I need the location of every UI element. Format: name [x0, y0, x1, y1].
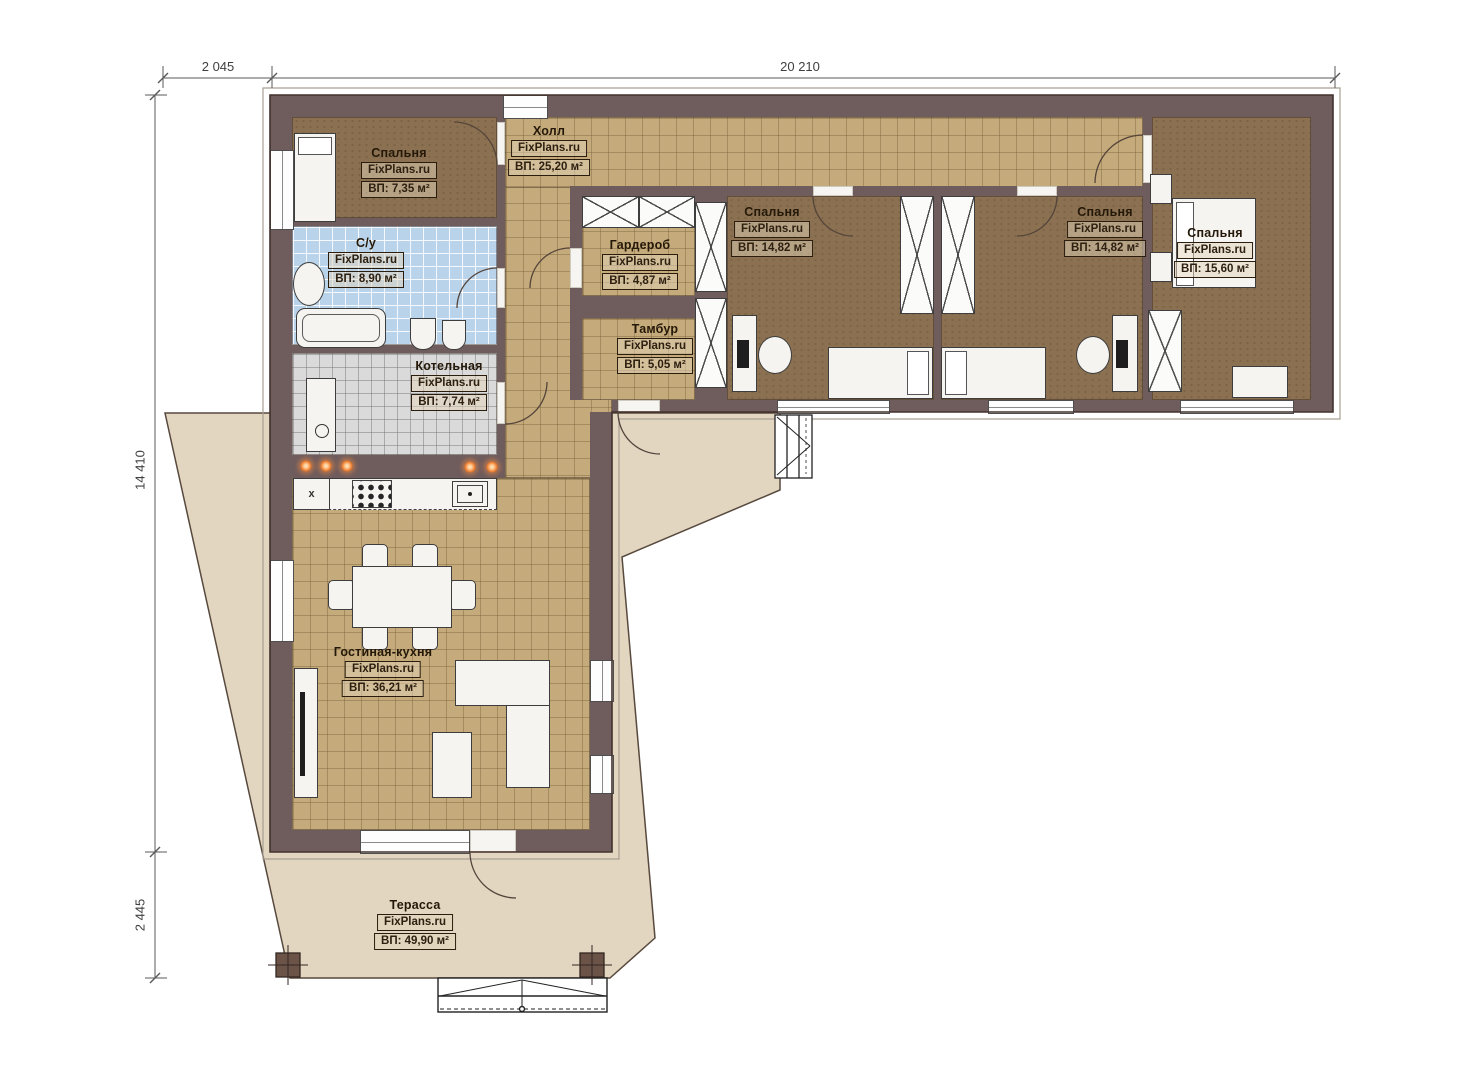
room-source: FixPlans.ru — [1177, 242, 1253, 259]
bed-bedroom-1 — [294, 133, 336, 222]
tv-stand — [294, 668, 318, 798]
utility-point-icon — [320, 460, 332, 472]
kitchen-sink — [452, 481, 488, 507]
room-source: FixPlans.ru — [377, 914, 453, 931]
closet-bedroom-4 — [1148, 310, 1182, 392]
room-label-terrace: Терасса FixPlans.ru ВП: 49,90 м² — [374, 898, 456, 950]
utility-point-icon — [300, 460, 312, 472]
closet-bedroom-2 — [900, 196, 934, 314]
room-title: Спальня — [371, 146, 426, 160]
room-source: FixPlans.ru — [511, 140, 587, 157]
bidet — [442, 320, 466, 350]
tv — [300, 692, 305, 776]
coffee-table — [432, 732, 472, 798]
stove — [352, 480, 392, 508]
room-area: ВП: 49,90 м² — [374, 933, 456, 950]
dining-chair — [412, 544, 438, 568]
utility-point-icon — [464, 461, 476, 473]
door-wardrobe — [570, 248, 582, 288]
window-bedroom-3 — [988, 400, 1074, 414]
wall-hall-bedrooms — [570, 186, 1143, 196]
window-living-right-1 — [590, 660, 614, 702]
room-label-hall: Холл FixPlans.ru ВП: 25,20 м² — [508, 124, 590, 176]
nightstand-1 — [1150, 174, 1172, 204]
room-area: ВП: 4,87 м² — [602, 273, 678, 290]
sofa-vertical — [506, 705, 550, 788]
room-label-bedroom-1: Спальня FixPlans.ru ВП: 7,35 м² — [361, 146, 437, 198]
door-terrace — [470, 830, 516, 852]
room-title: Холл — [533, 124, 565, 138]
chair-bedroom-2 — [758, 336, 792, 374]
dresser-bedroom-4 — [1232, 366, 1288, 398]
room-title: Терасса — [390, 898, 441, 912]
bathroom-sink — [293, 262, 325, 306]
door-bedroom-1 — [497, 122, 505, 165]
closet-strip-lower — [695, 298, 727, 388]
room-title: Спальня — [1187, 226, 1242, 240]
garden-steps — [438, 978, 607, 1012]
closet-strip-upper — [695, 202, 727, 292]
monitor-bedroom-3 — [1116, 340, 1128, 368]
closet-bedroom-3 — [941, 196, 975, 314]
room-source: FixPlans.ru — [602, 254, 678, 271]
room-source: FixPlans.ru — [361, 162, 437, 179]
dining-chair — [362, 544, 388, 568]
terrace-columns — [268, 945, 612, 985]
floor-hall — [505, 117, 1143, 188]
room-source: FixPlans.ru — [734, 221, 810, 238]
room-area: ВП: 7,35 м² — [361, 181, 437, 198]
room-label-vestibule: Тамбур FixPlans.ru ВП: 5,05 м² — [617, 322, 693, 374]
room-source: FixPlans.ru — [411, 375, 487, 392]
room-area: ВП: 14,82 м² — [731, 240, 813, 257]
room-title: С/у — [356, 236, 376, 250]
dimension-left-lower: 2 445 — [133, 899, 148, 932]
dimension-left-upper: 14 410 — [133, 450, 148, 490]
window-hall-top — [503, 95, 548, 119]
boiler — [306, 378, 336, 452]
monitor-bedroom-2 — [737, 340, 749, 368]
room-title: Спальня — [1077, 205, 1132, 219]
wall-wardrobe-vestibule — [582, 296, 695, 318]
window-living-bottom — [360, 830, 470, 854]
room-source: FixPlans.ru — [345, 661, 421, 678]
dimension-top-left: 2 045 — [202, 59, 235, 74]
dining-chair — [451, 580, 476, 610]
room-title: Спальня — [744, 205, 799, 219]
sofa-horizontal — [455, 660, 550, 706]
room-label-bedroom-2: Спальня FixPlans.ru ВП: 14,82 м² — [731, 205, 813, 257]
wardrobe-cabinet-1 — [582, 196, 639, 228]
door-bedroom-3 — [1017, 186, 1057, 196]
room-source: FixPlans.ru — [328, 252, 404, 269]
room-area: ВП: 15,60 м² — [1174, 261, 1256, 278]
nightstand-2 — [1150, 252, 1172, 282]
room-source: FixPlans.ru — [1067, 221, 1143, 238]
utility-point-icon — [486, 461, 498, 473]
room-label-living-kitchen: Гостиная-кухня FixPlans.ru ВП: 36,21 м² — [334, 645, 433, 697]
dimension-top-right: 20 210 — [780, 59, 820, 74]
room-area: ВП: 7,74 м² — [411, 394, 487, 411]
chair-bedroom-3 — [1076, 336, 1110, 374]
room-label-bathroom: С/у FixPlans.ru ВП: 8,90 м² — [328, 236, 404, 288]
room-source: FixPlans.ru — [617, 338, 693, 355]
room-title: Тамбур — [632, 322, 679, 336]
window-bedroom-4 — [1180, 400, 1294, 414]
toilet — [410, 318, 436, 350]
window-bedroom-1 — [270, 150, 294, 230]
window-living-right-2 — [590, 755, 614, 794]
room-area: ВП: 5,05 м² — [617, 357, 693, 374]
wardrobe-cabinet-2 — [639, 196, 695, 228]
door-boiler-room — [497, 382, 505, 424]
room-label-wardrobe: Гардероб FixPlans.ru ВП: 4,87 м² — [602, 238, 678, 290]
door-entrance — [618, 400, 660, 412]
wall-bedroom2-bedroom3 — [934, 196, 941, 400]
bathtub — [296, 308, 386, 348]
room-area: ВП: 8,90 м² — [328, 271, 404, 288]
door-bathroom — [497, 268, 505, 308]
room-title: Котельная — [415, 359, 482, 373]
dining-table — [352, 566, 452, 628]
room-area: ВП: 36,21 м² — [342, 680, 424, 697]
entrance-steps — [775, 415, 812, 478]
dining-chair — [328, 580, 353, 610]
room-label-bedroom-3: Спальня FixPlans.ru ВП: 14,82 м² — [1064, 205, 1146, 257]
door-bedroom-2 — [813, 186, 853, 196]
bed-bedroom-2 — [828, 347, 933, 399]
room-area: ВП: 25,20 м² — [508, 159, 590, 176]
window-living-left — [270, 560, 294, 642]
room-title: Гостиная-кухня — [334, 645, 433, 659]
room-label-boiler-room: Котельная FixPlans.ru ВП: 7,74 м² — [411, 359, 487, 411]
floor-plan-canvas: x — [0, 0, 1473, 1080]
kitchen-cabinet-sink: x — [293, 478, 330, 510]
sink-mark: x — [308, 488, 314, 500]
window-bedroom-2 — [777, 400, 890, 414]
room-area: ВП: 14,82 м² — [1064, 240, 1146, 257]
room-label-bedroom-4: Спальня FixPlans.ru ВП: 15,60 м² — [1174, 226, 1256, 278]
utility-point-icon — [341, 460, 353, 472]
wall-wardrobe-left — [570, 196, 582, 400]
bed-bedroom-3 — [941, 347, 1046, 399]
room-title: Гардероб — [610, 238, 671, 252]
